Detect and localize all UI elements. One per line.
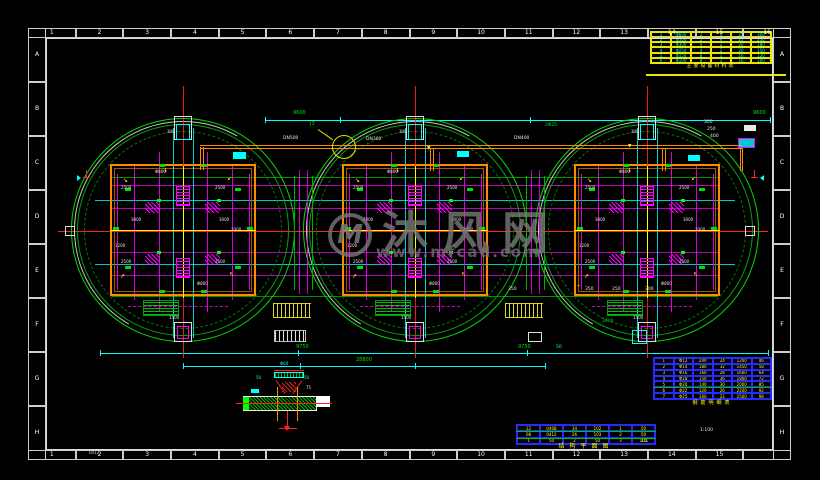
drawing-number-label: 0412 <box>89 451 99 455</box>
cad-drawing-canvas: M 沐风网 www.mfcad.com 主要设备材料表 钢筋明细表 结构平面图 … <box>0 0 820 480</box>
grid-col-bottom: 7 <box>314 450 362 460</box>
grid-row-right: B <box>773 82 791 136</box>
grid-row-right: G <box>773 352 791 406</box>
grid-row-right: E <box>773 244 791 298</box>
grid-col-bottom: 11 <box>505 450 553 460</box>
grid-row-left: A <box>28 28 46 82</box>
grid-col-top: 2 <box>76 28 124 38</box>
grid-col-top: 10 <box>457 28 505 38</box>
grid-col-top: 7 <box>314 28 362 38</box>
grid-col-bottom: 5 <box>219 450 267 460</box>
grid-col-top: 8 <box>362 28 410 38</box>
grid-col-bottom: 8 <box>362 450 410 460</box>
grid-row-left: D <box>28 190 46 244</box>
grid-row-right: D <box>773 190 791 244</box>
grid-row-right: A <box>773 28 791 82</box>
inner-frame <box>46 38 773 450</box>
grid-col-bottom: 15 <box>696 450 744 460</box>
grid-row-right: C <box>773 136 791 190</box>
grid-col-top: 3 <box>123 28 171 38</box>
table-caption-bottom-center: 结构平面图 <box>516 444 656 450</box>
grid-row-left: E <box>28 244 46 298</box>
grid-col-bottom: 13 <box>600 450 648 460</box>
grid-row-right: H <box>773 406 791 460</box>
table-caption-bottom-right: 钢筋明细表 <box>653 401 772 406</box>
grid-col-top: 9 <box>410 28 458 38</box>
table-caption-top-right: 主要设备材料表 <box>650 64 772 69</box>
grid-col-top: 11 <box>505 28 553 38</box>
grid-col-bottom: 9 <box>410 450 458 460</box>
grid-col-bottom: 4 <box>171 450 219 460</box>
grid-col-bottom: 2 <box>76 450 124 460</box>
grid-col-bottom: 12 <box>553 450 601 460</box>
grid-col-top: 14 <box>648 28 696 38</box>
grid-col-bottom: 6 <box>266 450 314 460</box>
grid-col-top: 6 <box>266 28 314 38</box>
grid-row-left: F <box>28 298 46 352</box>
grid-row-left: G <box>28 352 46 406</box>
grid-row-left: H <box>28 406 46 460</box>
grid-row-left: C <box>28 136 46 190</box>
grid-row-right: F <box>773 298 791 352</box>
grid-col-top: 4 <box>171 28 219 38</box>
grid-col-top: 12 <box>553 28 601 38</box>
grid-col-top: 5 <box>219 28 267 38</box>
grid-col-bottom: 3 <box>123 450 171 460</box>
grid-col-top: 15 <box>696 28 744 38</box>
grid-row-left: B <box>28 82 46 136</box>
grid-col-bottom: 14 <box>648 450 696 460</box>
grid-col-top: 13 <box>600 28 648 38</box>
grid-col-bottom: 10 <box>457 450 505 460</box>
